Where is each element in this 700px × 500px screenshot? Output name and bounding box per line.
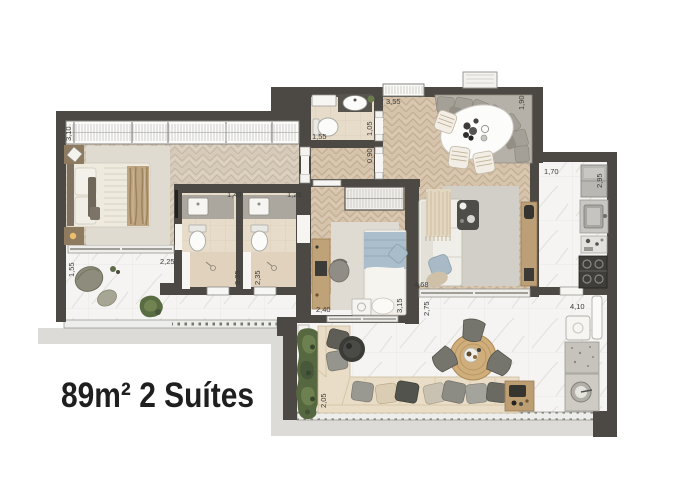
svg-text:3,15: 3,15 xyxy=(395,298,404,313)
svg-text:1,25: 1,25 xyxy=(287,190,302,199)
svg-text:4,10: 4,10 xyxy=(570,302,585,311)
svg-text:2,25: 2,25 xyxy=(160,257,175,266)
svg-text:4,68: 4,68 xyxy=(414,280,429,289)
svg-text:3,55: 3,55 xyxy=(386,97,401,106)
svg-text:2,40: 2,40 xyxy=(316,305,331,314)
svg-text:1,05: 1,05 xyxy=(365,121,374,136)
svg-text:0,90: 0,90 xyxy=(365,148,374,163)
svg-text:1,55: 1,55 xyxy=(312,132,327,141)
svg-text:3,10: 3,10 xyxy=(64,126,73,141)
svg-text:2,05: 2,05 xyxy=(319,393,328,408)
svg-text:2,75: 2,75 xyxy=(422,301,431,316)
svg-text:2,35: 2,35 xyxy=(253,270,262,285)
svg-text:2,95: 2,95 xyxy=(595,173,604,188)
svg-text:1,90: 1,90 xyxy=(517,95,526,110)
svg-text:1,70: 1,70 xyxy=(544,167,559,176)
svg-text:1,55: 1,55 xyxy=(67,262,76,277)
svg-text:2,35: 2,35 xyxy=(233,270,242,285)
svg-text:1,40: 1,40 xyxy=(227,190,242,199)
svg-text:89m² 2 Suítes: 89m² 2 Suítes xyxy=(61,376,254,415)
